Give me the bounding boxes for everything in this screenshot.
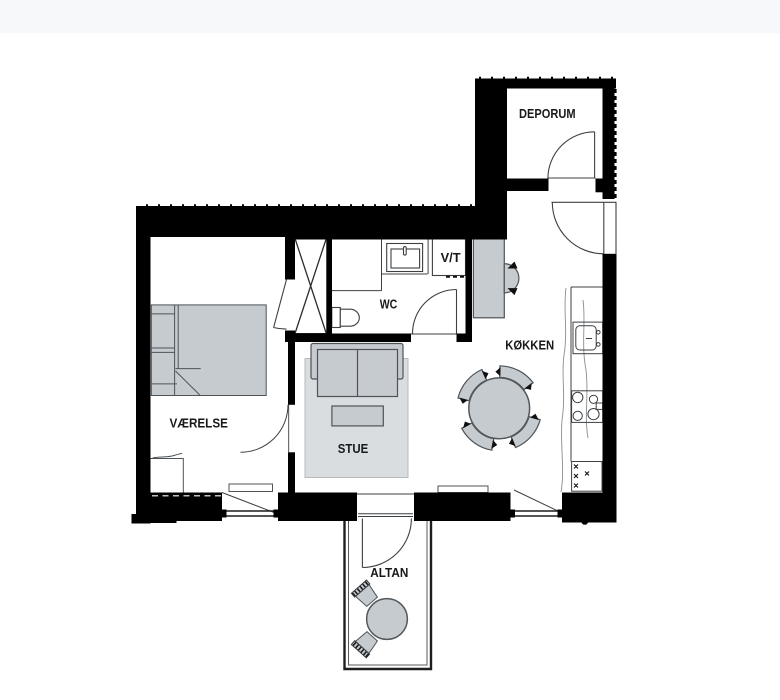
svg-text:STUE: STUE [338, 441, 369, 456]
svg-text:ALTAN: ALTAN [370, 565, 408, 580]
svg-text:VÆRELSE: VÆRELSE [169, 415, 228, 430]
svg-text:KØKKEN: KØKKEN [505, 337, 554, 352]
svg-text:DEPORUM: DEPORUM [519, 106, 576, 121]
svg-text:V/T: V/T [441, 251, 461, 265]
svg-text:WC: WC [380, 298, 398, 312]
